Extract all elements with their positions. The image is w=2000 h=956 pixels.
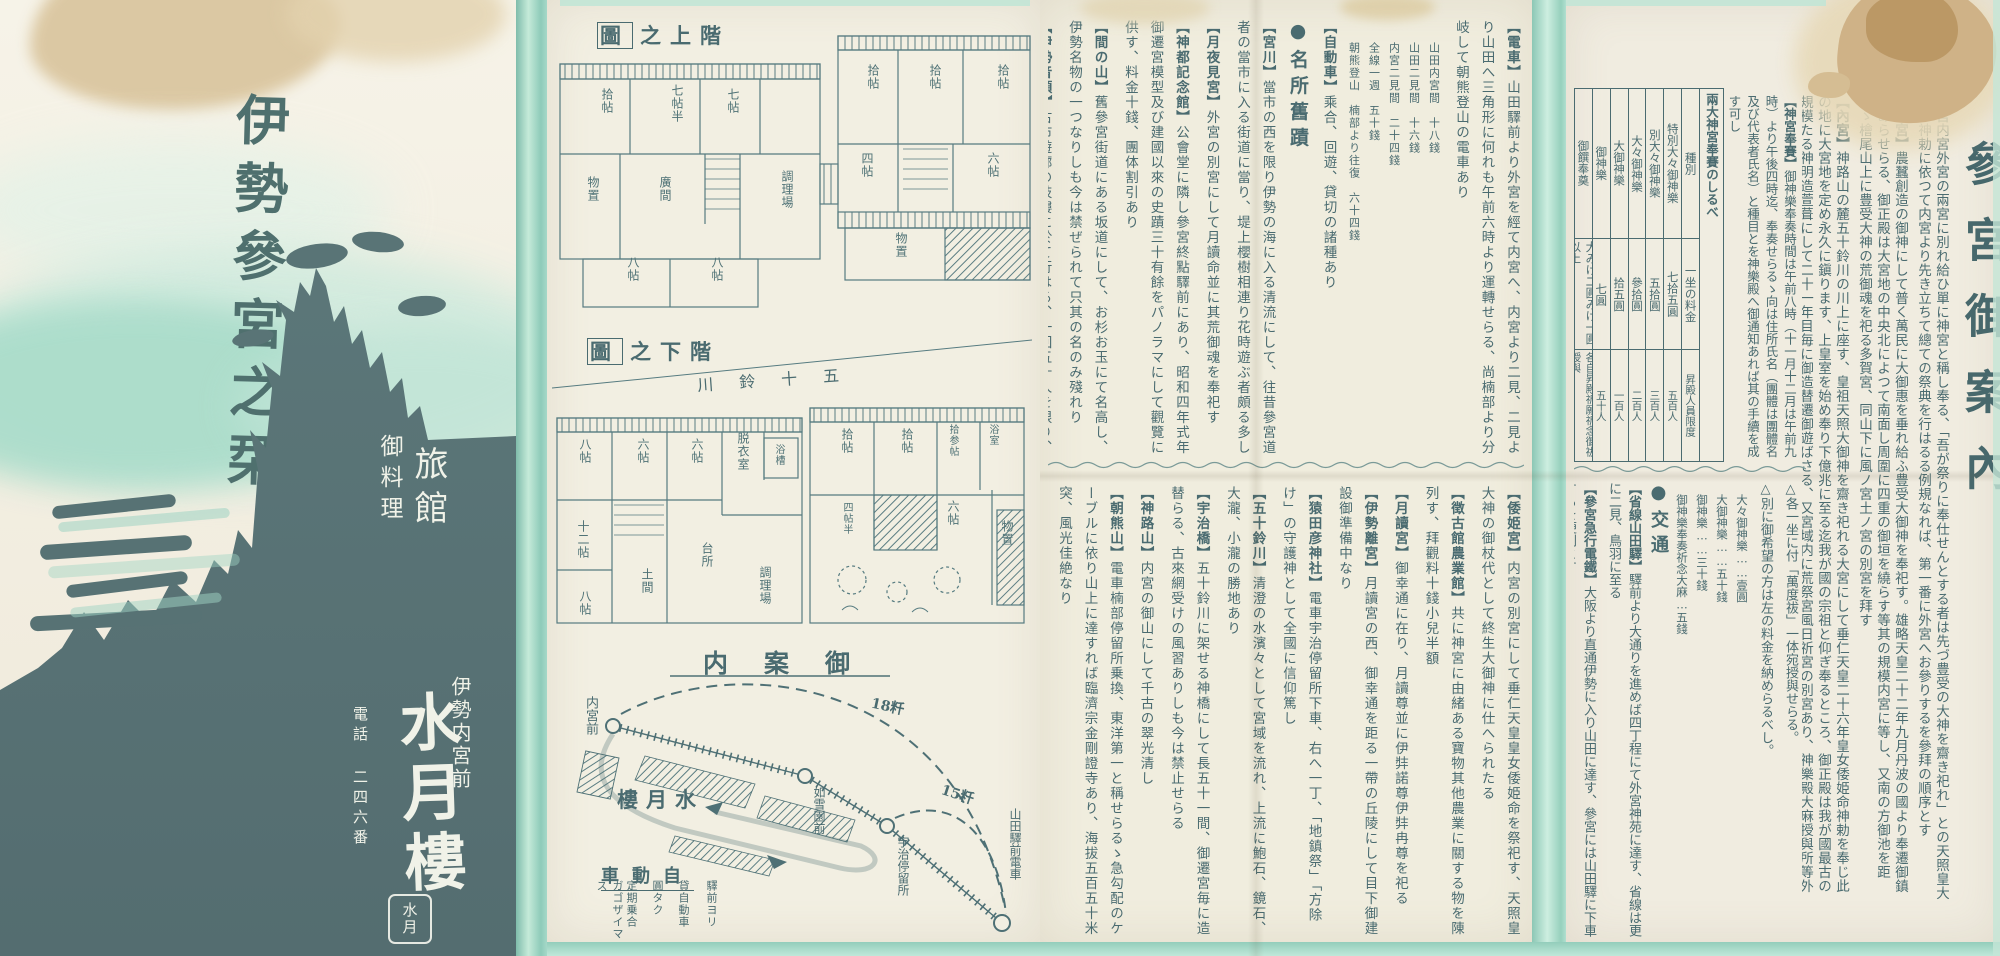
section-heading: 【宇治橋】	[1194, 486, 1210, 561]
room-label: 六帖	[689, 438, 706, 464]
map-station-naiku: 内宮前	[581, 696, 600, 735]
section-heading: 【電車】	[1504, 20, 1520, 80]
map-station-uji: 宇治停留所	[895, 836, 912, 896]
section-heading: 【神宮奉賽】	[1782, 95, 1797, 170]
room-label: 四帖	[859, 152, 876, 178]
fee-cell: 拾五圓	[1611, 238, 1628, 350]
section-divider: ●交通	[1648, 482, 1669, 560]
section-heading: 【猿田彦神社】	[1306, 486, 1322, 591]
section-divider: ●名所舊蹟	[1287, 20, 1309, 154]
map-station-yamada: 山田驛前電車	[1007, 808, 1024, 880]
room-label: 土間	[639, 568, 656, 594]
room-label: 拾帖	[839, 428, 856, 454]
title-rest: 之下階	[630, 339, 720, 364]
section-heading: 【間の山】	[1092, 20, 1108, 95]
section-heading: 【倭姫宮】	[1504, 486, 1520, 561]
text-section: 大々御神樂……壹圓大御神樂……五十錢御神樂……三十錢御神樂奉奏祈念大麻…五錢	[1673, 482, 1750, 938]
room-label: 浴室	[985, 424, 1000, 446]
text-section: 【神都記念館】公會堂に隣し參宮終點驛前にあり、昭和四年式年御遷宮模型及び建國以來…	[1117, 20, 1194, 456]
text-section: 【伊勢離宮】月讀宮の西、御幸通を距る一帶の丘陵にして目下御建設御準備中なり	[1331, 486, 1382, 938]
pine-foliage	[351, 229, 405, 254]
capacity-cell: 三百人	[1646, 349, 1663, 461]
section-heading: 【神路山】	[1138, 486, 1154, 561]
room-label: 物置	[893, 232, 910, 258]
inn-phone: 電話 二四六番	[350, 706, 371, 849]
kagura-fee-table: 兩大神宮奉賽のしるべ 種別 一坐の料金 昇殿人員限度 特別大々御神樂 七拾五圓 …	[1574, 88, 1724, 462]
kagura-type-cell: 御神樂	[1593, 89, 1610, 238]
inn-type-label: 旅館	[404, 446, 453, 534]
text-section: 【月夜見宮】外宮の別宮にして月讀命並に其荒御魂を奉祀す	[1198, 20, 1224, 456]
capacity-cell: 一百人	[1611, 349, 1628, 461]
text-section: 【外宮】農蠶創造の御神にして普く萬民に大御惠を垂れ給ふ豊受大御神を奉祀す。雄略天…	[1855, 95, 1909, 905]
room-label: 拾帖	[927, 64, 944, 90]
title-box-char: 圖	[597, 22, 633, 49]
fare-item: 全線一週 五十錢	[1366, 42, 1383, 456]
kagura-type-cell: 特別大々御神樂	[1664, 89, 1681, 238]
table-header-cell: 一坐の料金	[1682, 238, 1699, 350]
text-section: 【朝熊山】電車楠部停留所乗換、東洋第一と稱せらるゝ急勾配のケーブルに依り山上に達…	[1051, 486, 1128, 938]
inn-cuisine-label: 御料理	[372, 434, 406, 527]
room-label: 八帖	[625, 256, 642, 282]
fee-cell: 參拾圓	[1629, 238, 1646, 350]
room-label: 拾帖	[899, 428, 916, 454]
access-map: 内案御 内宮前 如雪園前 宇治停留所 山田驛前電車 樓月水 18粁 15粁 車動…	[555, 636, 1033, 942]
room-label: 八帖	[577, 438, 594, 464]
room-label: 調理場	[779, 170, 796, 209]
table-row: 御饌奉奠 大みけ二圓みけ一圓以上 各自昇殿祈願祈念御祓授與	[1575, 89, 1592, 461]
room-label: 七帖半	[669, 84, 686, 123]
kagura-type-cell: 大御神樂	[1611, 89, 1628, 238]
fare-item: 大々御神樂……壹圓	[1733, 494, 1750, 938]
text-section: ●交通	[1648, 482, 1668, 938]
fee-cell: 七圓	[1593, 238, 1610, 350]
shrines-and-sights-text: 【倭姫宮】内宮の別宮にして垂仁天皇皇女倭姫命を祭祀す、天照皇大神の御杖代として終…	[1048, 486, 1524, 938]
kagura-type-cell: 別大々御神樂	[1646, 89, 1663, 238]
section-body: △各一坐に付「萬度祓」一体宛授與せらる。	[1783, 482, 1798, 744]
section-body: 乘合、回遊、貸切の諸種あり	[1321, 95, 1337, 290]
table-row: 特別大々御神樂 七拾五圓 五百人	[1663, 89, 1681, 461]
section-body: 御幸通に在り、月讀尊並に伊弉諾尊伊弉冉尊を祀る	[1392, 561, 1408, 906]
table-header-cell: 昇殿人員限度	[1682, 349, 1699, 461]
text-section: 神宮内宮外宮の兩宮に別れ給ひ單に神宮と稱し奉る、「吾が祭りに奉仕せんとする者は先…	[1914, 95, 1950, 905]
fare-list: 大々御神樂……壹圓大御神樂……五十錢御神樂……三十錢御神樂奉奏祈念大麻…五錢	[1673, 482, 1750, 938]
section-body: 内宮の御山にして千古の翠光清し	[1138, 561, 1154, 786]
fare-item: 朝熊登山 楠部より往復 六十四錢	[1346, 42, 1363, 456]
fare-item: 大御神樂……五十錢	[1713, 494, 1730, 938]
section-body: 山田驛前より外宮を經て内宮へ、内宮より二見、二見より山田へ三角形に何れも午前六時…	[1453, 20, 1520, 455]
room-label: 七帖	[725, 88, 742, 114]
text-section: 【徴古館農業館】共に神宮に由緒ある寶物其他農業に關する物を陳列す、拜觀料十錢小兒…	[1417, 486, 1468, 938]
section-heading: 【省線山田驛】	[1626, 482, 1641, 573]
paper-tear	[1808, 72, 1850, 98]
section-heading: 【月夜見宮】	[1204, 20, 1220, 110]
backing-edge	[560, 0, 1030, 6]
fold-crease	[1040, 470, 2000, 482]
text-section: 【宇治橋】五十鈴川に架せる神橋にして長五十一間、御遷宮毎に造替らる、古來網受けの…	[1163, 486, 1214, 938]
room-label: 台所	[699, 542, 716, 568]
section-body: 外宮の別宮にして月讀命並に其荒御魂を奉祀す	[1204, 110, 1220, 425]
map-legend-item: 貸自動車	[675, 880, 691, 928]
title-rest: 之上階	[640, 23, 730, 48]
table-row: 御神樂 七圓 五十人	[1592, 89, 1610, 461]
paper-stain	[1340, 0, 1435, 20]
map-station-josetsuen: 如雪園前	[811, 786, 828, 834]
table-header-column: 種別 一坐の料金 昇殿人員限度	[1681, 89, 1699, 461]
backing-edge	[1566, 0, 1826, 6]
fee-cell: 五拾圓	[1646, 238, 1663, 350]
capacity-cell: 二百人	[1629, 349, 1646, 461]
transport-and-sights-text: 【電車】山田驛前より外宮を經て内宮へ、内宮より二見、二見より山田へ三角形に何れも…	[1048, 20, 1524, 456]
floorplan-panel: 圖之上階 拾帖 七帖半	[547, 0, 1040, 942]
transport-access-text: △各一坐に付「萬度祓」一体宛授與せらる。 △別に御希望の方は左の料金を納めらるべ…	[1574, 482, 1800, 938]
text-section: 【倭姫宮】内宮の別宮にして垂仁天皇皇女倭姫命を祭祀す、天照皇大神の御杖代として終…	[1473, 486, 1524, 938]
wavy-divider	[1048, 460, 1524, 470]
table-row: 大々御神樂 參拾圓 二百人	[1628, 89, 1646, 461]
room-label: 物置	[999, 520, 1016, 546]
room-label: 八帖	[709, 256, 726, 282]
fare-item: 山田内宮間 十八錢	[1426, 42, 1443, 456]
room-label: 脱衣室	[735, 432, 752, 471]
cover-panel: 伊勢參宮之栞 旅館 御料理 伊勢内宮前 水月樓 電話 二四六番 水月	[0, 0, 516, 956]
title-box-char: 圖	[587, 338, 623, 365]
brochure-scan: 伊勢參宮之栞 旅館 御料理 伊勢内宮前 水月樓 電話 二四六番 水月 圖之上階	[0, 0, 2000, 956]
map-legend-item: 圓タク	[649, 880, 665, 916]
section-heading: 【月讀宮】	[1392, 486, 1408, 561]
text-section: 【電車】山田驛前より外宮を經て内宮へ、内宮より二見、二見より山田へ三角形に何れも…	[1448, 20, 1525, 456]
shrine-offering-text: 【神宮奉賽】御神樂奉奏時間は午前八時（十一月十二月は午前九時）より午後四時迄、奉…	[1726, 95, 1798, 463]
room-label: 六帖	[945, 500, 962, 526]
room-label: 拾帖	[865, 64, 882, 90]
section-heading: 【自動車】	[1321, 20, 1337, 95]
text-section: 【間の山】舊參宮街道にある坂道にして、お杉お玉にて名高し、伊勢名物の一つなりしも…	[1061, 20, 1112, 456]
section-heading: 【徴古館農業館】	[1448, 486, 1464, 606]
text-section: △各一坐に付「萬度祓」一体宛授與せらる。	[1780, 482, 1800, 938]
room-label: 十二帖	[575, 520, 592, 559]
upper-floorplan-title: 圖之上階	[597, 20, 730, 50]
section-heading: 【參宮急行電鐵】	[1581, 482, 1596, 586]
table-title: 兩大神宮奉賽のしるべ	[1699, 89, 1723, 461]
seal-text: 水月	[400, 902, 421, 936]
map-legend-item: 驛前ヨリ	[703, 880, 719, 928]
pine-branch	[40, 535, 193, 561]
fare-item: 山田二見間 十六錢	[1406, 42, 1423, 456]
room-label: 六帖	[985, 152, 1002, 178]
inn-name: 水月樓	[378, 688, 475, 901]
section-body: 内宮外宮の兩宮に別れ給ひ單に神宮と稱し奉る、「吾が祭りに奉仕せんとする者は先づ豊…	[1915, 95, 1949, 900]
section-heading: 【朝熊山】	[1107, 486, 1123, 561]
room-label: 調理場	[757, 566, 774, 605]
backing-edge	[1993, 0, 2000, 956]
capacity-cell: 五十人	[1593, 349, 1610, 461]
room-label: 八帖	[577, 590, 594, 616]
kagura-type-cell: 大々御神樂	[1629, 89, 1646, 238]
text-section: 【參宮急行電鐵】大阪より直通伊勢に入り山田に達す、參宮には山田驛に下車するを便利…	[1574, 482, 1598, 938]
fare-item: 御神樂奉奏祈念大麻…五錢	[1673, 494, 1690, 938]
table-header-cell: 種別	[1682, 89, 1699, 238]
map-title: 内案御	[703, 644, 886, 680]
kagura-type-cell: 御饌奉奠	[1575, 89, 1592, 238]
section-heading: 【伊勢音頭】	[1048, 20, 1052, 110]
map-inn-label: 樓月水	[617, 784, 704, 814]
text-section: ●名所舊蹟	[1285, 20, 1311, 456]
lower-floorplan-title: 圖之下階	[587, 336, 720, 366]
room-label: 拾帖	[995, 64, 1012, 90]
room-label: 物置	[585, 176, 602, 202]
shrine-description-text: 神宮内宮外宮の兩宮に別れ給ひ單に神宮と稱し奉る、「吾が祭りに奉仕せんとする者は先…	[1802, 95, 1950, 905]
section-body: 農蠶創造の御神にして普く萬民に大御惠を垂れ給ふ豊受大御神を奉祀す。雄略天皇二十二…	[1856, 95, 1908, 893]
section-body: 神路山の麓五十鈴川の川上に座す、皇祖天照大御神を齋き祀れる大宮にして垂仁天皇二十…	[1802, 95, 1849, 893]
fee-cell: 七拾五圓	[1664, 238, 1681, 350]
table-row: 別大々御神樂 五拾圓 三百人	[1645, 89, 1663, 461]
text-section: 山田内宮間 十八錢山田二見間 十六錢内宮二見間 二十四錢全線一週 五十錢朝熊登山…	[1346, 20, 1443, 456]
capacity-cell: 各自昇殿祈願祈念御祓授與	[1575, 349, 1592, 461]
section-heading: 【神都記念館】	[1173, 20, 1189, 125]
fare-item: 内宮二見間 二十四錢	[1386, 42, 1403, 456]
room-label: 浴槽	[771, 444, 786, 466]
text-section: 【月讀宮】御幸通に在り、月讀尊並に伊弉諾尊伊弉冉尊を祀る	[1387, 486, 1413, 938]
backing-edge	[547, 942, 2000, 956]
fare-item: 御神樂……三十錢	[1693, 494, 1710, 938]
section-body: △別に御希望の方は左の料金を納めらるべし。	[1758, 482, 1773, 757]
inn-seal-stamp: 水月	[388, 894, 432, 944]
room-label: 拾参帖	[945, 424, 960, 457]
text-section: 【猿田彦神社】電車宇治停留所下車、右へ一丁、「地鎮祭」「方除け」の守護神として全…	[1275, 486, 1326, 938]
text-section: 【自動車】乘合、回遊、貸切の諸種あり	[1315, 20, 1341, 456]
paper-tear	[1866, 0, 1958, 62]
room-label: 拾帖	[599, 88, 616, 114]
room-label: 六帖	[635, 438, 652, 464]
text-section: △別に御希望の方は左の料金を納めらるべし。	[1755, 482, 1775, 938]
text-section: 【神路山】内宮の御山にして千古の翠光清し	[1132, 486, 1158, 938]
table-row: 大御神樂 拾五圓 一百人	[1610, 89, 1628, 461]
section-heading: 【伊勢離宮】	[1362, 486, 1378, 576]
map-legend-item: ガゴザイマス	[593, 880, 625, 942]
room-label: 四帖半	[839, 502, 854, 535]
text-section: 【神宮奉賽】御神樂奉奏時間は午前八時（十一月十二月は午前九時）より午後四時迄、奉…	[1726, 95, 1798, 463]
capacity-cell: 五百人	[1664, 349, 1681, 461]
room-label: 廣間	[657, 176, 674, 202]
fare-list: 山田内宮間 十八錢山田二見間 十六錢内宮二見間 二十四錢全線一週 五十錢朝熊登山…	[1346, 20, 1443, 456]
map-legend-item: 定期乗合	[623, 880, 639, 928]
fold-strip	[516, 0, 547, 956]
text-section: 【省線山田驛】驛前より大通りを進めば四丁程にて外宮神苑に達す、省線は更に二見、鳥…	[1603, 482, 1643, 938]
fee-cell: 大みけ二圓みけ一圓以上	[1575, 238, 1592, 350]
text-section: 【伊勢音頭】古市遊廓の妓樓に於て行はる、一回五十人を限り、料金五圓三十餘錢	[1048, 20, 1056, 456]
text-section: 【內宮】神路山の麓五十鈴川の川上に座す、皇祖天照大御神を齋き祀れる大宮にして垂仁…	[1802, 95, 1850, 905]
